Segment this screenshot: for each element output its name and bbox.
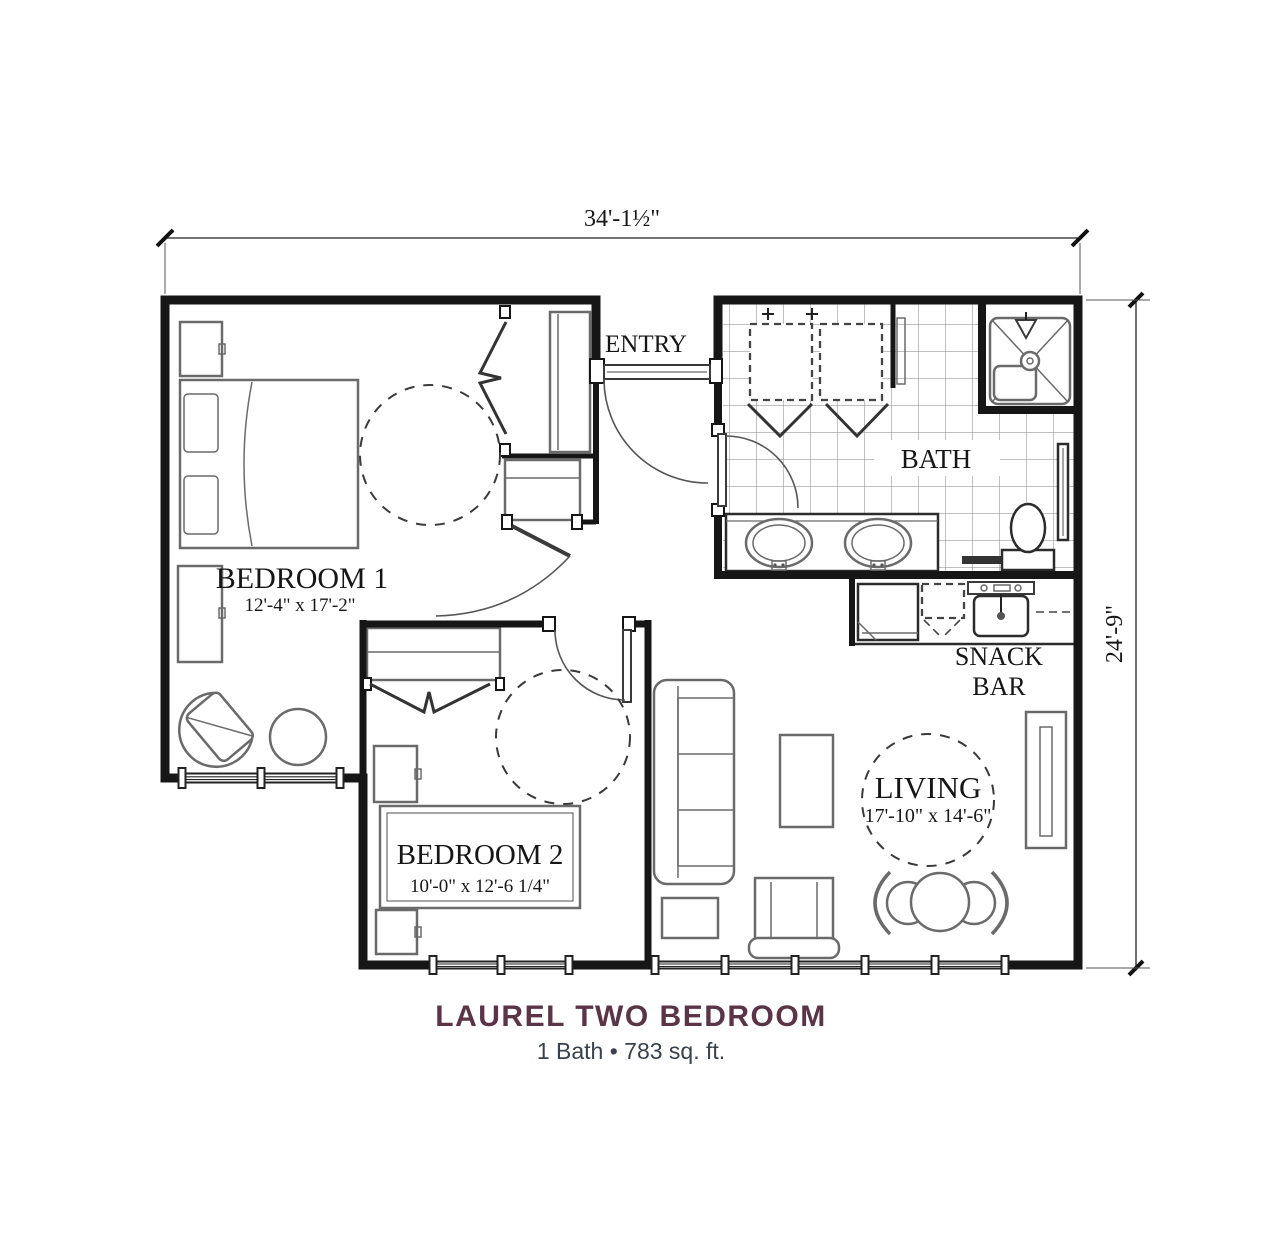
snack-bar-label-line2: BAR — [972, 672, 1026, 701]
bath-grab-bar-right — [1058, 444, 1068, 540]
living-furniture — [654, 680, 1066, 958]
bedroom2-closet — [367, 628, 500, 680]
wardrobe — [550, 312, 590, 452]
turning-circle-bedroom2 — [496, 670, 630, 804]
entry-door — [590, 359, 722, 483]
cabinet — [505, 460, 580, 520]
side-table — [270, 709, 326, 765]
bedroom1-window — [179, 768, 344, 788]
floor-plan-page: ENTRY BATH BEDROOM 1 12'-4" x 17'-2" BED… — [0, 0, 1262, 1254]
dimension-right: 24'-9" — [1086, 293, 1150, 975]
bedroom2-door — [543, 617, 635, 702]
plan-title: LAUREL TWO BEDROOM — [0, 1000, 1262, 1034]
nightstand — [376, 910, 417, 954]
armchair — [749, 878, 839, 958]
bedroom2-furniture — [367, 628, 580, 954]
bath-label: BATH — [901, 444, 972, 474]
tv-console — [1026, 712, 1066, 848]
bedroom2-dims: 10'-0" x 12'-6 1/4" — [410, 876, 550, 897]
coffee-table — [780, 735, 833, 827]
dimension-height-label: 24'-9" — [1102, 605, 1128, 663]
bed — [180, 380, 358, 548]
refrigerator — [858, 584, 918, 640]
floor-plan-canvas: ENTRY BATH BEDROOM 1 12'-4" x 17'-2" BED… — [0, 0, 1262, 1254]
bedroom2-window — [430, 956, 573, 974]
dining-table — [911, 873, 969, 931]
dimension-top: 34'-1½" — [157, 206, 1088, 294]
plan-subtitle: 1 Bath • 783 sq. ft. — [0, 1038, 1262, 1065]
dining-set — [875, 872, 1007, 934]
turning-circle-bedroom1 — [360, 385, 500, 525]
living-dims: 17'-10" x 14'-6" — [865, 805, 992, 827]
bedroom1-door — [436, 515, 582, 616]
bedroom1-label: BEDROOM 1 — [216, 562, 389, 595]
snack-bar-area — [855, 582, 1074, 644]
entry-label: ENTRY — [605, 331, 687, 358]
side-table — [662, 898, 718, 938]
living-label: LIVING — [875, 770, 982, 805]
dresser — [180, 322, 222, 376]
bedroom1-closet — [505, 312, 590, 520]
dimension-width-label: 34'-1½" — [584, 206, 660, 232]
bath-shower — [990, 312, 1070, 404]
snack-bar-label-line1: SNACK — [955, 642, 1043, 671]
sofa — [654, 680, 734, 884]
bedroom1-furniture — [164, 312, 590, 782]
nightstand — [374, 746, 417, 802]
bedroom1-dims: 12'-4" x 17'-2" — [244, 595, 355, 616]
bedroom2-closet-bifold — [363, 678, 504, 712]
bath-vanity — [726, 514, 938, 571]
bedroom1-closet-bifold — [480, 306, 510, 456]
dishwasher — [922, 584, 964, 638]
kitchen-sink — [968, 582, 1034, 636]
bedroom2-label: BEDROOM 2 — [397, 839, 564, 871]
